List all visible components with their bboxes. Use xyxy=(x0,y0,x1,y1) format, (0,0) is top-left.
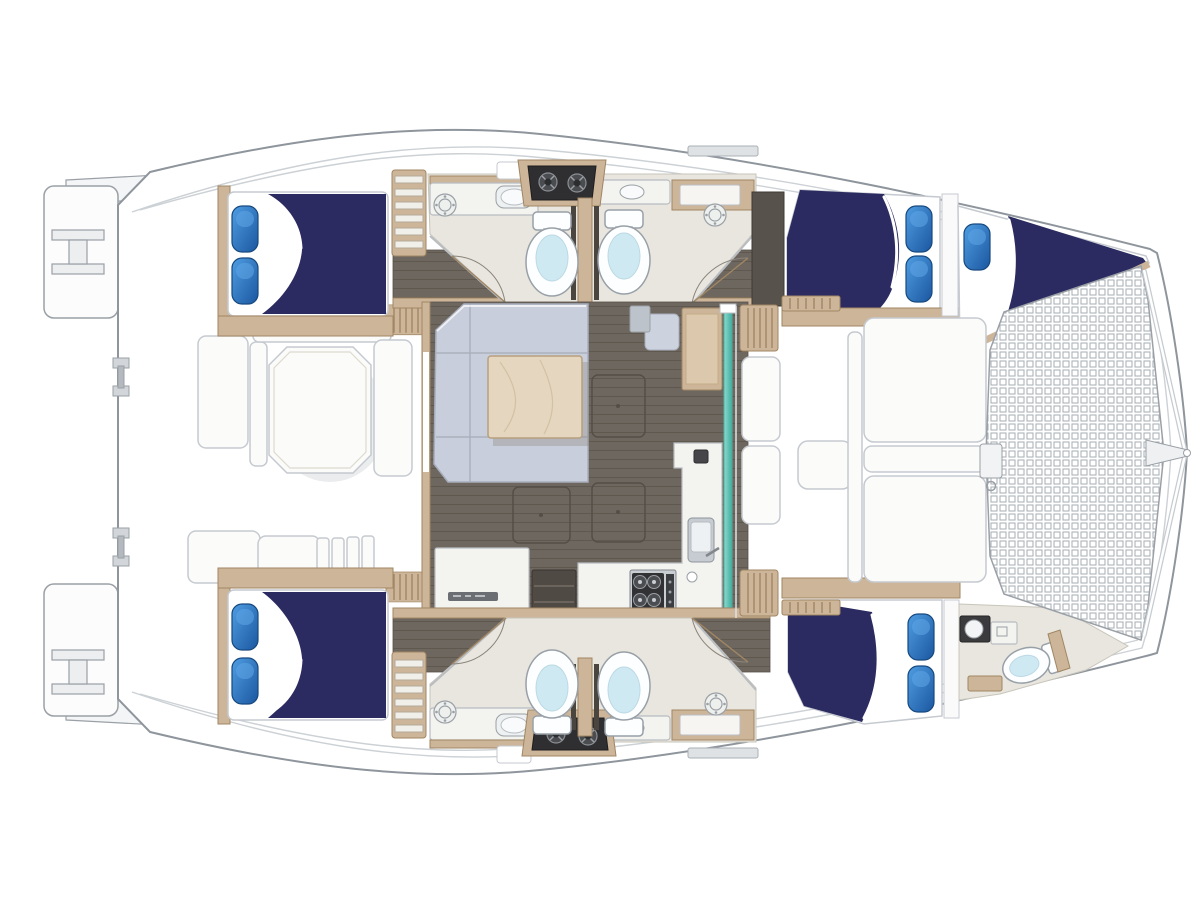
salon-aft-door xyxy=(423,352,429,472)
forestay-fitting xyxy=(1184,450,1191,457)
cockpit-octagonal-table xyxy=(269,347,371,473)
port-sink-right-basin xyxy=(620,185,644,199)
bed-foot-shelf xyxy=(218,316,393,336)
wardrobe xyxy=(752,192,784,306)
pillow xyxy=(906,256,932,302)
cabin-divider xyxy=(944,600,959,718)
nav-desk-top xyxy=(686,314,718,384)
stbd-heads-divider-wall xyxy=(578,658,592,736)
shower-drain-icon xyxy=(434,701,456,723)
sliding-glass-door xyxy=(724,310,732,620)
galley-stove xyxy=(630,570,676,614)
salon-coffee-table xyxy=(488,356,582,438)
yacht-floor-plan xyxy=(0,0,1200,900)
galley-knob xyxy=(687,572,697,582)
cockpit-bench-seat xyxy=(250,342,267,466)
pillow xyxy=(232,258,258,304)
toilet-port-right xyxy=(598,210,650,294)
pillow xyxy=(964,224,990,270)
pillow xyxy=(906,206,932,252)
pillow xyxy=(232,658,258,704)
fwd-seat-left-1 xyxy=(742,357,780,441)
stbd-sink-left-basin xyxy=(501,717,527,733)
shower-drain-icon xyxy=(704,204,726,226)
pillow xyxy=(232,604,258,650)
fwd-seat-left-2 xyxy=(742,446,780,524)
stbd-divider-rail-right xyxy=(594,664,599,730)
fwd-bench-cushion-bottom xyxy=(864,476,986,582)
fwd-bench-strip xyxy=(864,446,986,472)
bow-head-sink-basin xyxy=(965,620,983,638)
shower-drain-icon xyxy=(434,194,456,216)
fwd-small-table xyxy=(798,441,852,489)
anchor-locker xyxy=(980,444,1002,478)
trampoline-net xyxy=(986,266,1164,640)
teak-grate-fwd-stbd xyxy=(740,570,778,616)
salon xyxy=(422,302,748,623)
door-frame-top xyxy=(720,304,736,313)
port-heads-divider-wall xyxy=(578,198,592,302)
bed-duvet-navy xyxy=(787,190,899,313)
cockpit-bench-right xyxy=(374,340,412,476)
bow-head-counter-white xyxy=(991,622,1017,644)
cockpit-bench-back xyxy=(198,336,248,448)
shower-drain-icon xyxy=(705,693,727,715)
teak-grate-fwd-port xyxy=(740,305,778,351)
bed-foot-shelf xyxy=(218,568,393,588)
engine-dial-icon xyxy=(568,174,586,192)
pillow xyxy=(908,666,934,712)
port-head-cabinet-front xyxy=(680,185,740,205)
genoa-track-port xyxy=(688,146,758,156)
stbd-salon-sill xyxy=(393,608,770,618)
stbd-aft-cabin xyxy=(218,568,393,724)
stbd-head-cabinet-front xyxy=(680,715,740,735)
port-aft-cabin xyxy=(218,186,393,336)
stbd-companionway-steps xyxy=(392,652,426,738)
cabin-divider xyxy=(942,194,958,316)
galley-sink-basin xyxy=(691,522,711,552)
toilet-stbd-left xyxy=(526,650,578,734)
fwd-bench-back xyxy=(848,332,862,582)
toilet-port-left xyxy=(526,212,578,296)
nav-side-cabinet xyxy=(630,306,650,332)
port-companionway-steps xyxy=(392,170,426,256)
engine-dial-icon xyxy=(539,173,557,191)
pillow xyxy=(908,614,934,660)
toilet-stbd-right xyxy=(598,652,650,736)
bow-head-cabinet xyxy=(968,676,1002,691)
fwd-bench-cushion-top xyxy=(864,318,986,442)
genoa-track-starboard xyxy=(688,748,758,758)
floor-plan-canvas xyxy=(0,0,1200,900)
pillow xyxy=(232,206,258,252)
galley-small-fixture xyxy=(694,450,708,463)
